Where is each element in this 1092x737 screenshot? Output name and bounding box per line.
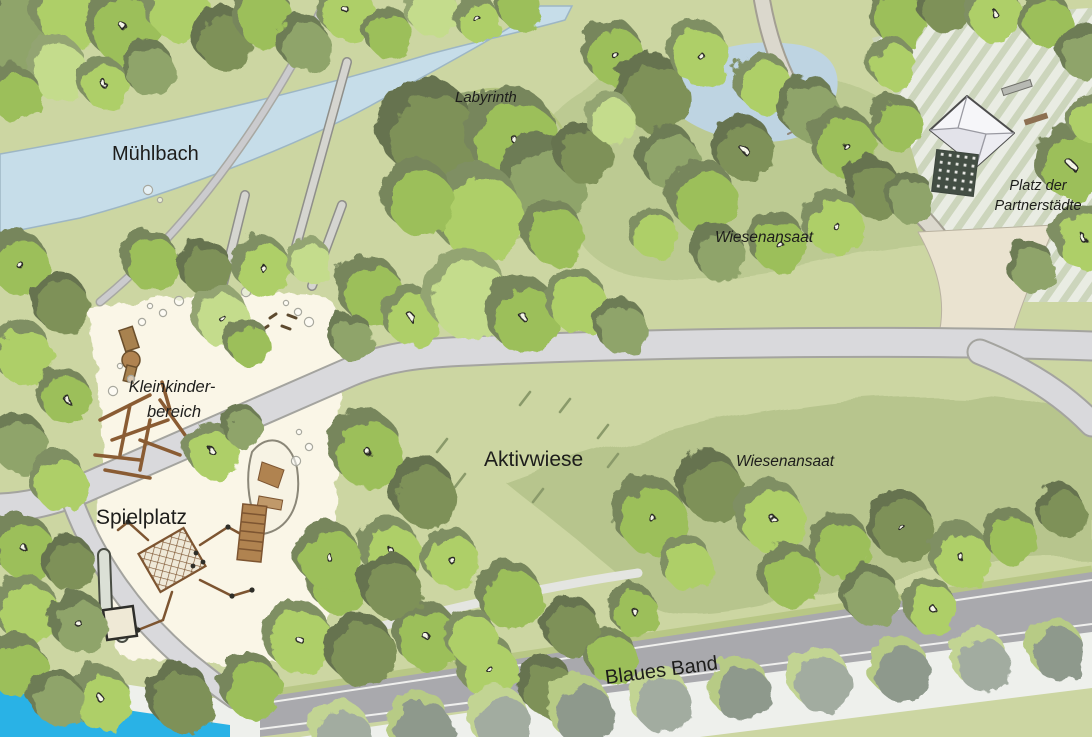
pebble [294,308,301,315]
tree-marker-dot [632,609,638,615]
tree-marker-dot [449,557,455,563]
tree-marker-dot [842,142,848,148]
tree-marker-dot [522,315,528,321]
tree-marker-dot [769,515,775,521]
tree-marker-dot [327,555,333,561]
tree-marker-dot [929,605,935,611]
tree-marker-dot [219,315,225,321]
label-muehlbach: Mühlbach [112,143,199,165]
tree-marker-dot [260,265,266,271]
pebble [143,185,152,194]
tree-marker-dot [649,515,655,521]
pebble [174,296,183,305]
tree-grid-square [932,150,979,197]
park-plan-svg: Mühlbach Labyrinth Wiesenansaat Platz de… [0,0,1092,737]
label-kleinkinder-line1: Kleinkinder- [129,378,216,396]
label-kleinkinder-line2: bereich [147,403,201,421]
tree-marker-dot [102,82,108,88]
label-wiesenansaat-nord: Wiesenansaat [715,229,814,246]
tree-marker-dot [425,635,431,641]
pebble [283,300,288,305]
tree-marker-dot [485,665,491,671]
tree-marker-dot [899,525,905,531]
pebble [138,318,145,325]
pebble [147,303,152,308]
label-spielplatz: Spielplatz [96,506,187,529]
tree-marker-dot [742,147,748,153]
tree-marker-dot [345,9,351,15]
pebble [108,386,117,395]
label-platz-line2: Partnerstädte [994,198,1081,214]
tree-marker-dot [959,555,965,561]
pebble [305,443,312,450]
label-labyrinth: Labyrinth [455,89,517,106]
pebble [304,317,313,326]
sandbox [103,606,137,640]
tree-marker-dot [475,17,481,23]
tree-marker-dot [99,697,105,703]
tree-marker-dot [122,25,128,31]
tree-marker-dot [63,395,69,401]
label-platz-line1: Platz der [1009,178,1067,194]
label-wiesenansaat-sued: Wiesenansaat [736,453,835,470]
pebble [157,197,162,202]
wood-steps [237,504,267,562]
tree-marker-dot [1082,237,1088,243]
tree-marker-dot [1069,162,1075,168]
tree-marker-dot [21,545,27,551]
park-plan: Mühlbach Labyrinth Wiesenansaat Platz de… [0,0,1092,737]
tree-marker-dot [77,622,83,628]
tree-marker-dot [17,262,23,268]
tree-marker-dot [992,11,998,17]
tree-marker-dot [612,52,618,58]
pebble [159,309,166,316]
tree-marker-dot [697,52,703,58]
pebble [291,456,300,465]
tree-marker-dot [409,315,415,321]
tree-marker-dot [832,222,838,228]
pebble [117,363,122,368]
tree-marker-dot [297,637,303,643]
pebble [296,429,301,434]
label-aktivwiese: Aktivwiese [484,448,583,471]
tree-marker-dot [365,449,371,455]
tree-marker-dot [210,449,216,455]
